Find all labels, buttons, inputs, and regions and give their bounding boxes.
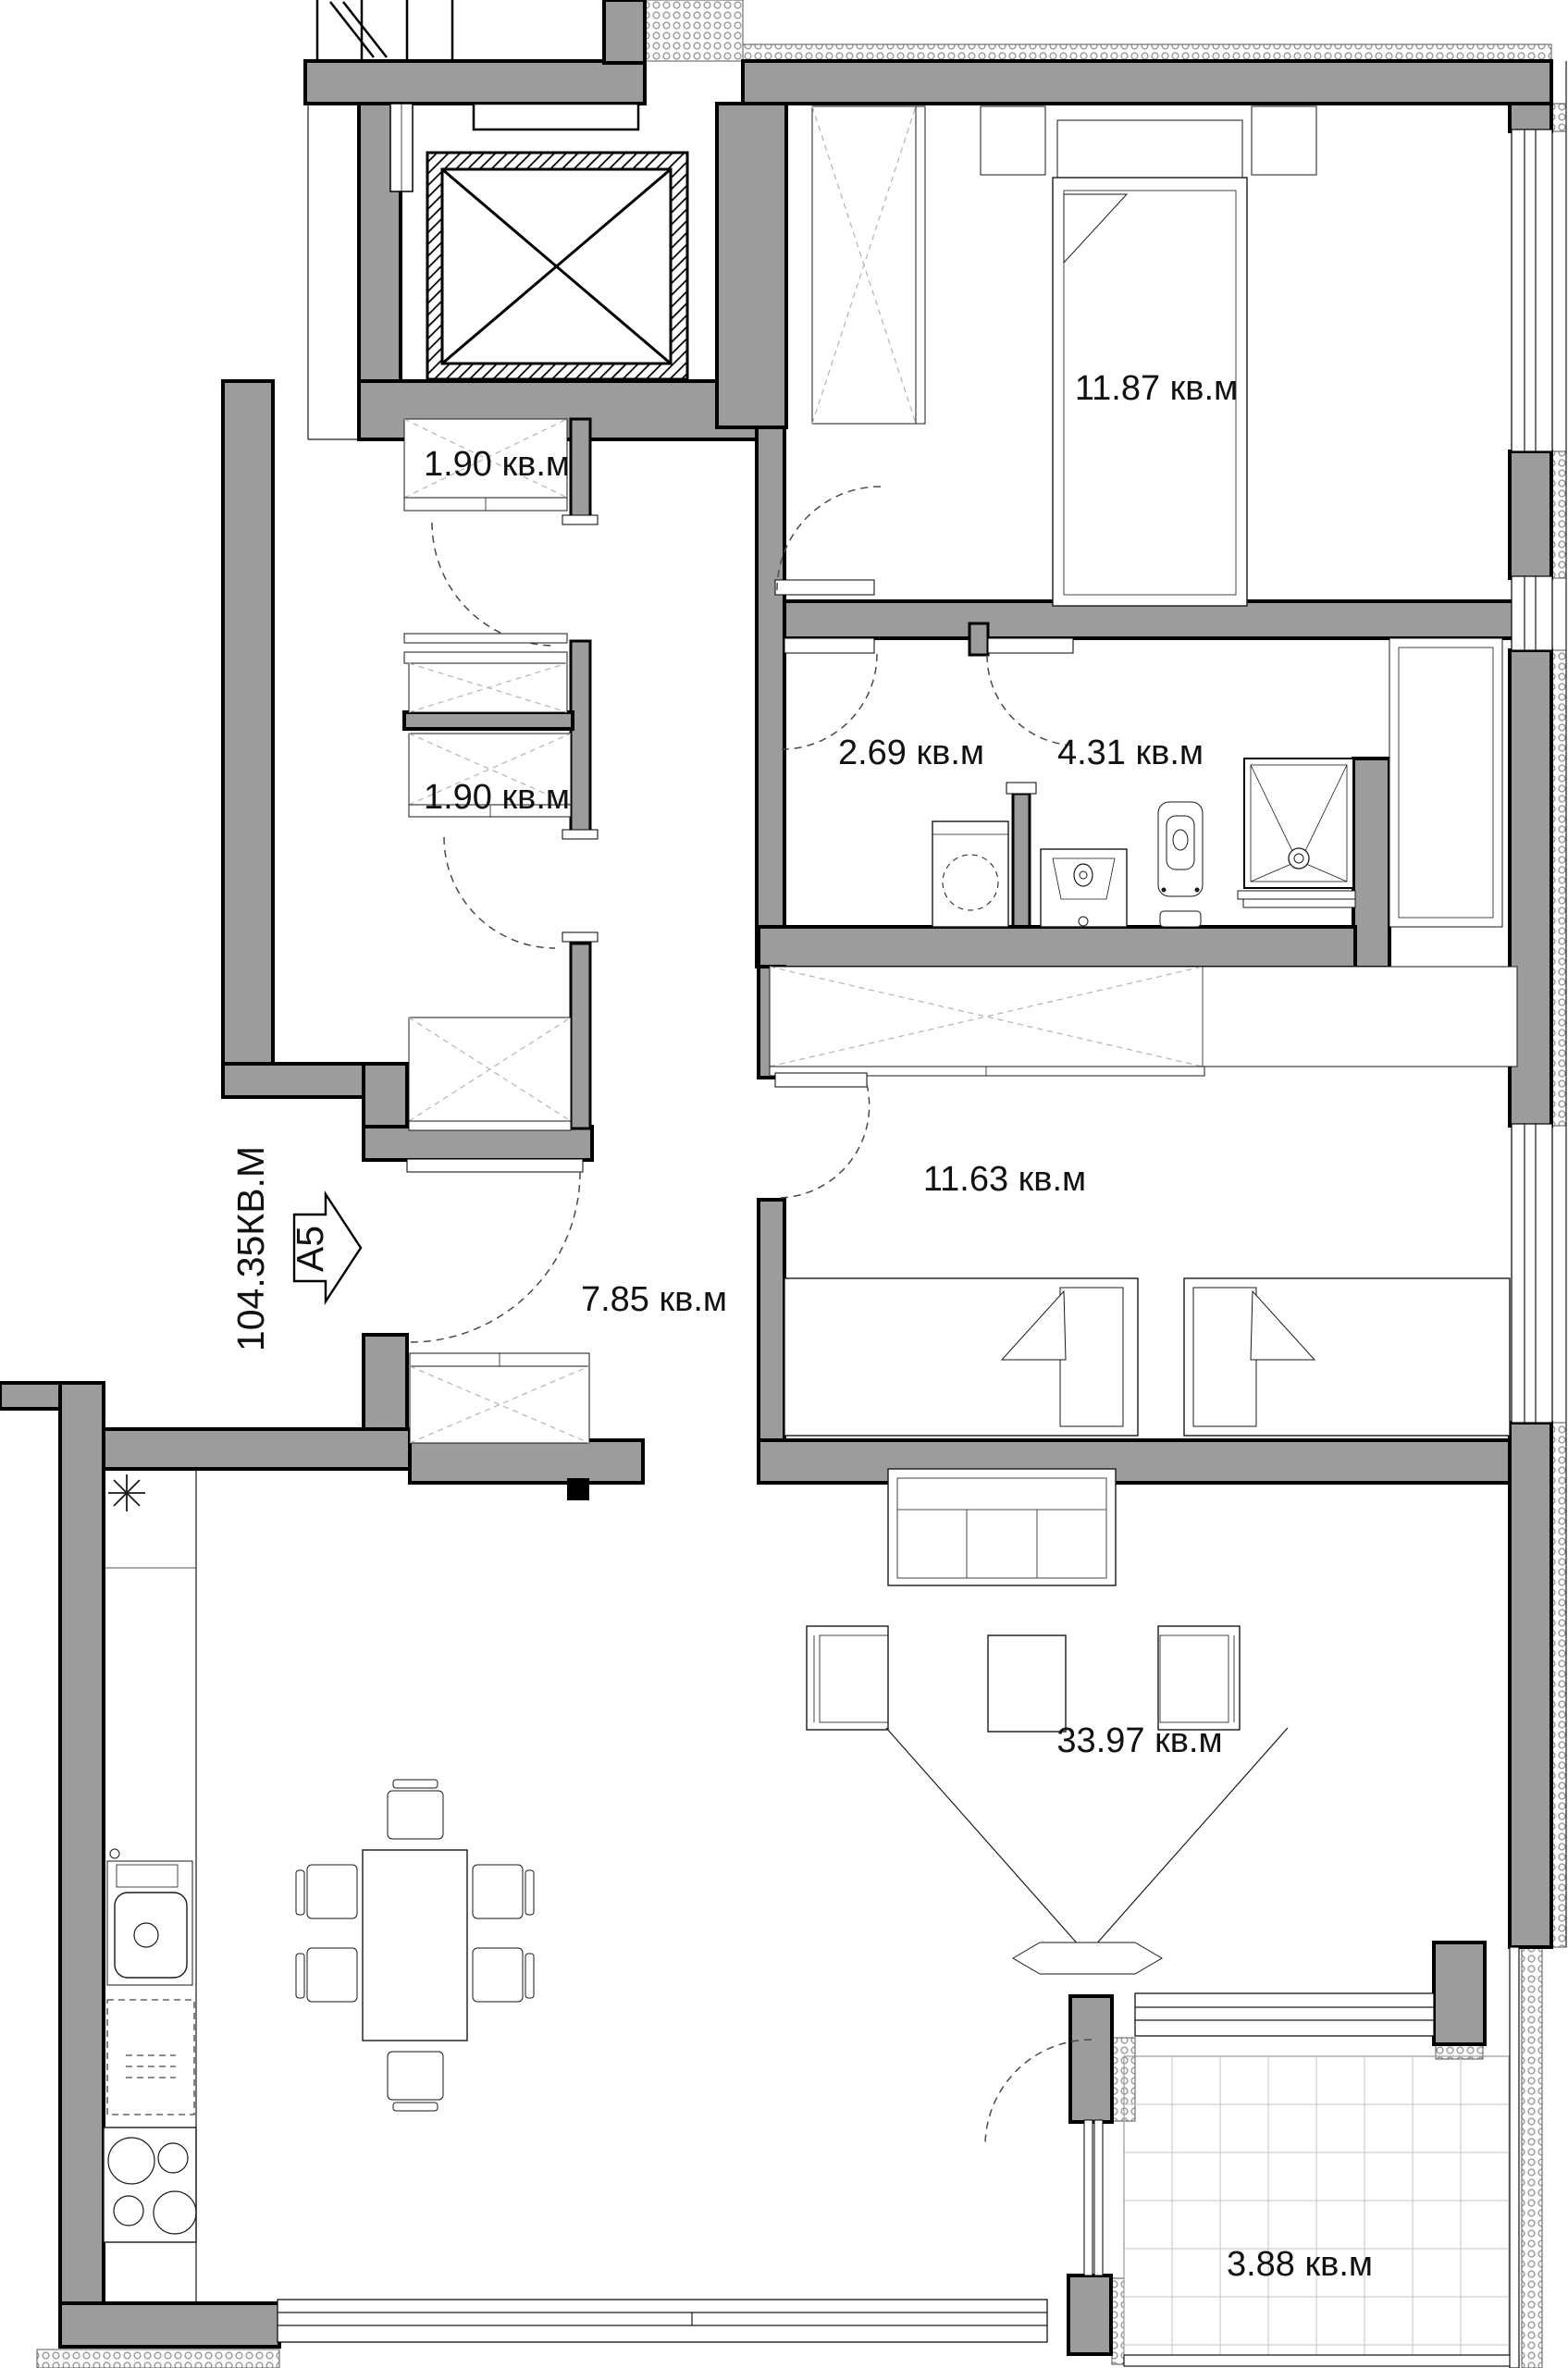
- boiler-symbol: [108, 1474, 145, 1511]
- room-label-bathroom: 4.31 кв.м: [1057, 734, 1204, 772]
- wall-end-block: [567, 1478, 589, 1500]
- room-label-hallway: 7.85 кв.м: [581, 1280, 727, 1319]
- chair: [388, 2052, 443, 2100]
- nightstand: [1252, 106, 1316, 175]
- chair: [307, 1865, 357, 1918]
- door-frame: [784, 638, 874, 653]
- window-bathroom: [1512, 576, 1552, 650]
- stove: [104, 2127, 196, 2242]
- elevator-door: [474, 104, 638, 129]
- closet-door-arc: [432, 523, 555, 646]
- floor-plan-page: A5 104.35КВ.М 11.87 кв.м 1.90 кв.м 1.90 …: [0, 0, 1568, 2368]
- dining-set: [296, 1780, 534, 2111]
- bathroom-door-arc: [987, 655, 1078, 746]
- bed-headboard: [1057, 120, 1242, 178]
- room-label-storage-upper: 1.90 кв.м: [424, 445, 570, 484]
- chair: [307, 1948, 357, 2002]
- wet-rooms: [782, 638, 1502, 927]
- closet-door-arc: [444, 837, 555, 948]
- room-label-laundry-corridor: 2.69 кв.м: [838, 734, 984, 772]
- balcony-door-leaf: [1084, 2120, 1093, 2275]
- room-label-bedroom-main: 11.87 кв.м: [1075, 369, 1238, 408]
- dining-table: [363, 1850, 467, 2041]
- bedroom-main: [775, 106, 1316, 606]
- window-bedroom-main: [1512, 129, 1552, 451]
- nightstand: [981, 106, 1045, 175]
- kitchen: [104, 1469, 196, 2301]
- door-frame: [988, 638, 1073, 653]
- tv-console: [1013, 1942, 1162, 1974]
- storage-closets: [404, 419, 598, 1130]
- chair: [473, 1865, 523, 1918]
- pillow: [1193, 1288, 1256, 1426]
- duct-shaft: [1389, 638, 1502, 927]
- balcony-tiles: [1124, 2056, 1510, 2355]
- door-leaf: [775, 1073, 867, 1087]
- coffee-table: [988, 1635, 1066, 1732]
- armchair: [1158, 1626, 1240, 1730]
- room-label-living-room: 33.97 кв.м: [1056, 1721, 1222, 1760]
- pillow: [1060, 1288, 1123, 1426]
- room-label-balcony: 3.88 кв.м: [1227, 2245, 1373, 2284]
- unit-label: A5: [289, 1226, 331, 1272]
- balcony-side-rail: [1510, 1947, 1519, 2368]
- bedroom2-door-arc: [777, 1084, 870, 1198]
- wardrobe-box: [770, 967, 1517, 1067]
- entrance-door-leaf: [407, 1159, 583, 1172]
- bedroom-second: [770, 967, 1517, 1436]
- kitchen-sink: [115, 1893, 187, 1978]
- room-label-storage-lower: 1.90 кв.м: [424, 778, 570, 817]
- armchair: [807, 1626, 888, 1730]
- total-area-label: 104.35КВ.М: [229, 1146, 272, 1351]
- hallway: [407, 1159, 589, 1443]
- entrance-marker: A5 104.35КВ.М: [229, 1146, 361, 1351]
- shower-drain: [1289, 848, 1309, 869]
- bedroom-door-arc: [777, 487, 881, 590]
- window-living-south: [278, 2300, 1047, 2342]
- chair: [473, 1948, 523, 2002]
- chair: [388, 1791, 443, 1839]
- sofa: [888, 1469, 1116, 1585]
- entrance-door-arc: [410, 1172, 580, 1342]
- room-label-bedroom-second: 11.63 кв.м: [923, 1160, 1086, 1199]
- balcony-parapet: [1124, 2355, 1519, 2366]
- floor-plan-drawing: A5 104.35КВ.М 11.87 кв.м 1.90 кв.м 1.90 …: [0, 0, 1568, 2368]
- window-living-balcony: [1135, 1993, 1434, 2036]
- sink: [1041, 849, 1127, 927]
- stair-marks: [317, 0, 452, 59]
- door-leaf: [775, 580, 874, 595]
- dishwasher: [107, 2000, 194, 2115]
- window-bedroom-second: [1512, 1124, 1552, 1423]
